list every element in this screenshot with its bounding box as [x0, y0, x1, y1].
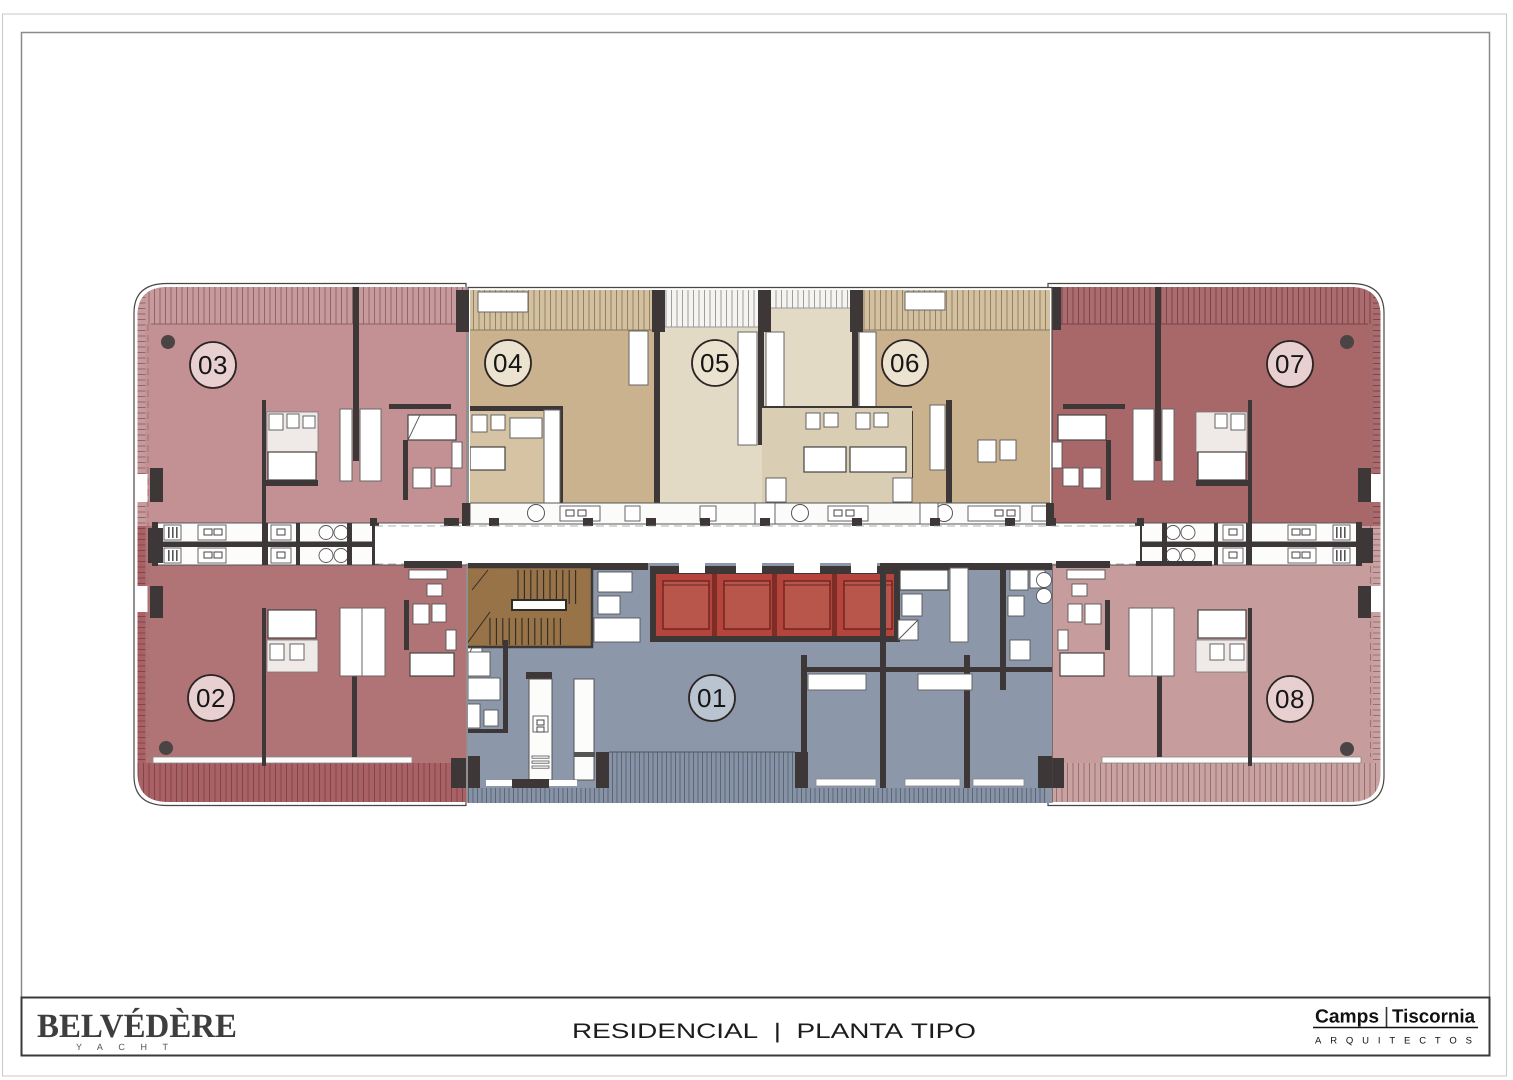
svg-text:03: 03 [198, 350, 228, 380]
svg-text:BELVÉDÈRE: BELVÉDÈRE [37, 1007, 237, 1045]
svg-text:05: 05 [700, 348, 730, 378]
svg-text:01: 01 [697, 683, 727, 713]
svg-text:Camps: Camps [1315, 1007, 1379, 1028]
svg-text:ARQUITECTOS: ARQUITECTOS [1315, 1036, 1478, 1047]
svg-text:04: 04 [493, 348, 523, 378]
svg-text:07: 07 [1275, 349, 1305, 379]
svg-text:06: 06 [890, 348, 920, 378]
svg-text:Tiscornia: Tiscornia [1392, 1007, 1475, 1028]
svg-text:02: 02 [196, 683, 226, 713]
svg-text:08: 08 [1275, 684, 1305, 714]
svg-text:RESIDENCIAL | PLANTA TIPO: RESIDENCIAL | PLANTA TIPO [572, 1020, 976, 1043]
